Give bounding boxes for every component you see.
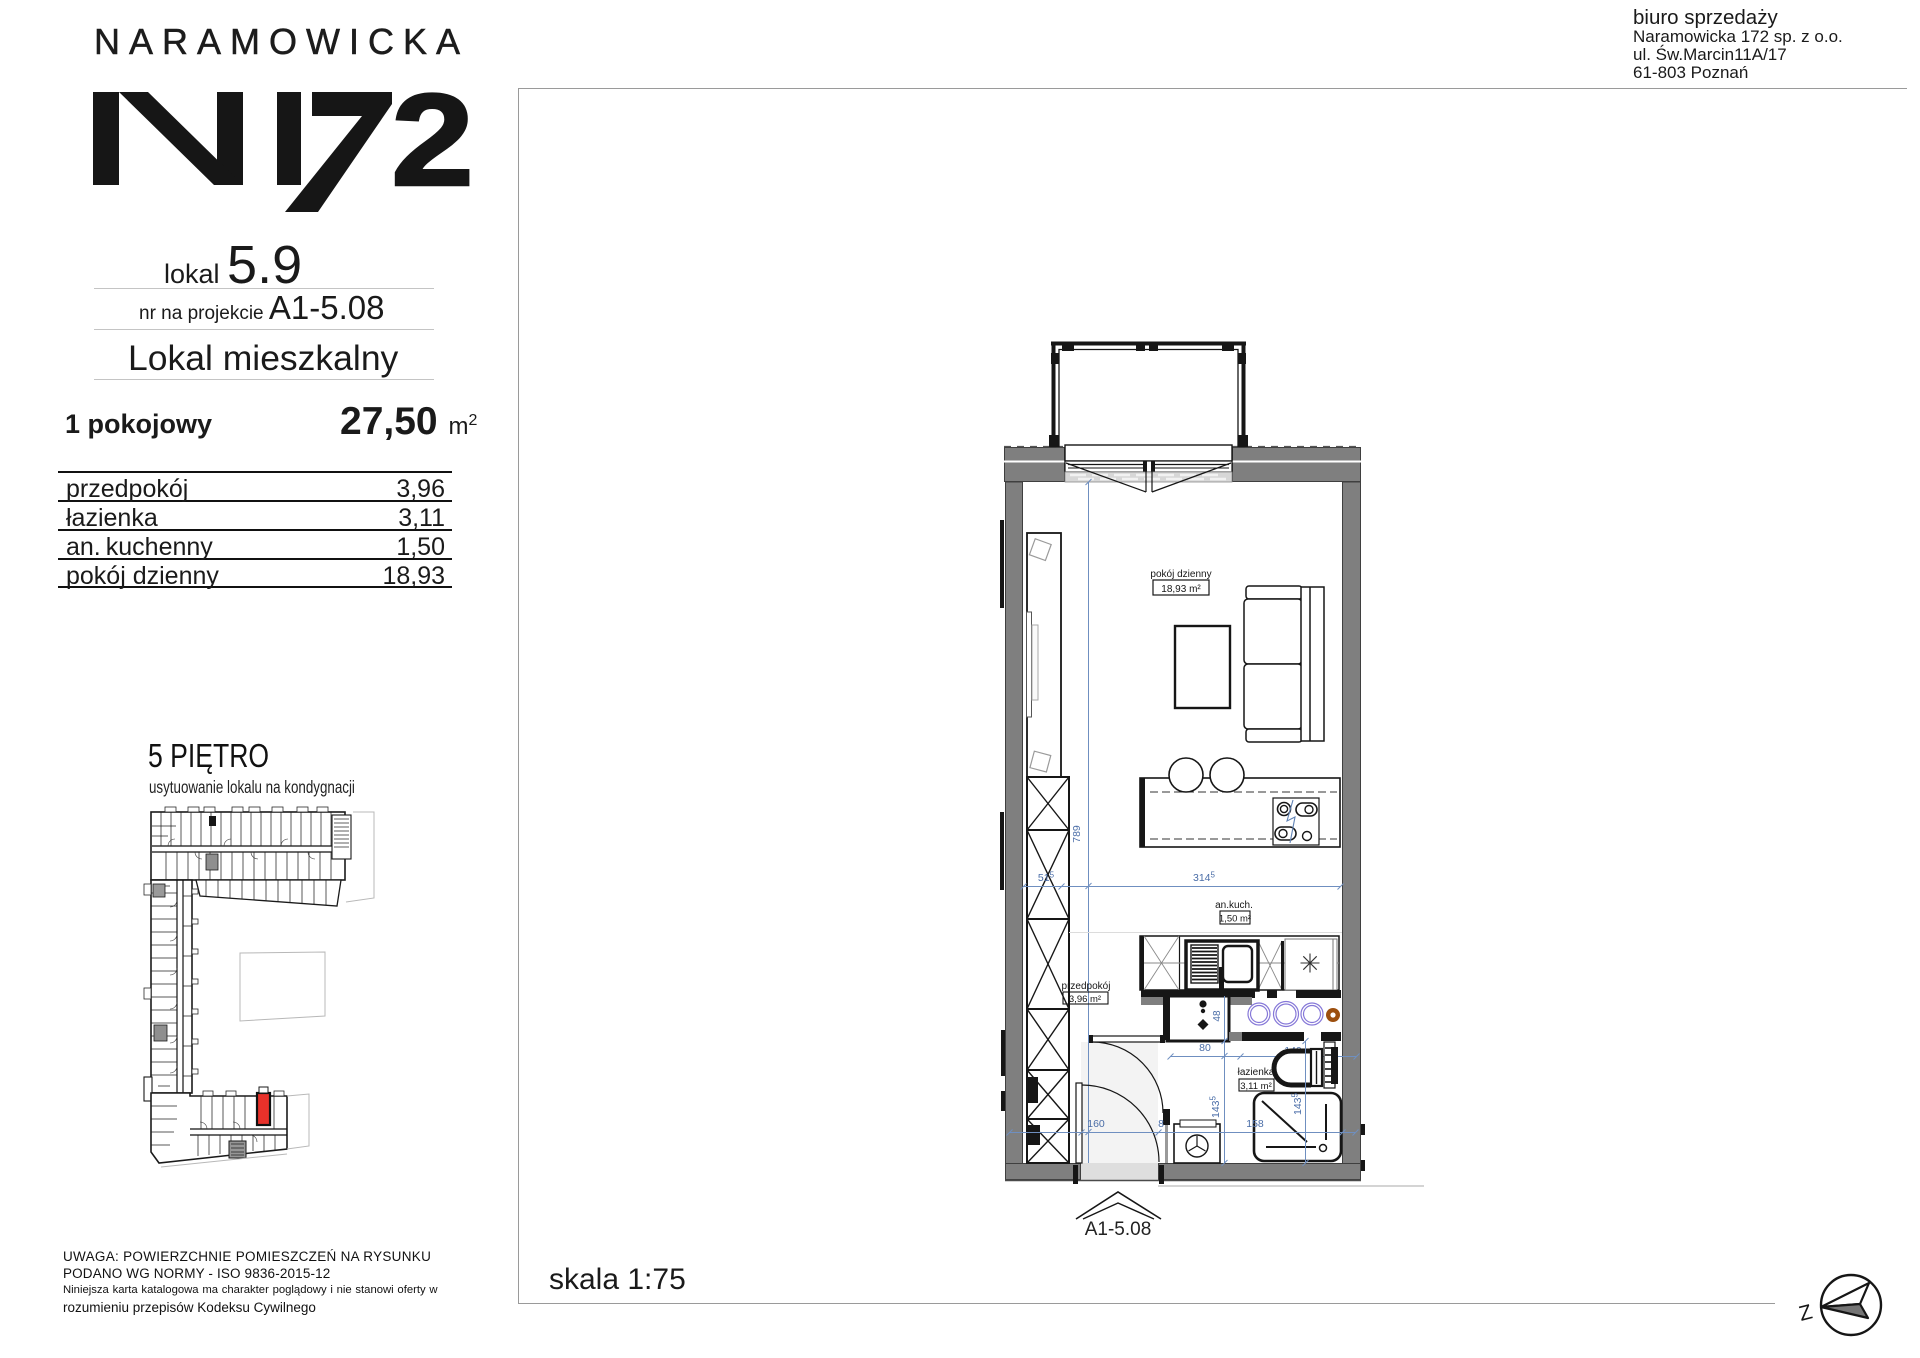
svg-text:3,96 m²: 3,96 m² [1069,994,1101,1005]
svg-text:3145: 3145 [1193,871,1216,885]
svg-text:1,50 m²: 1,50 m² [1219,914,1251,925]
svg-text:18,93 m²: 18,93 m² [1161,584,1201,595]
svg-text:789: 789 [1071,825,1083,843]
svg-text:48: 48 [1212,1010,1223,1022]
svg-text:160: 160 [1087,1118,1105,1130]
svg-text:158: 158 [1246,1118,1264,1130]
svg-text:łazienka: łazienka [1238,1067,1275,1078]
svg-text:przedpokój: przedpokój [1062,981,1111,992]
svg-text:3,11 m²: 3,11 m² [1240,1081,1272,1092]
svg-text:A1-5.08: A1-5.08 [1085,1219,1152,1240]
svg-text:80: 80 [1199,1042,1211,1054]
svg-text:8: 8 [1158,1118,1164,1130]
svg-text:pokój dzienny: pokój dzienny [1150,569,1211,580]
svg-text:an.kuch.: an.kuch. [1215,900,1253,911]
svg-text:Z: Z [1797,1300,1815,1325]
svg-text:1435: 1435 [1209,1095,1223,1118]
